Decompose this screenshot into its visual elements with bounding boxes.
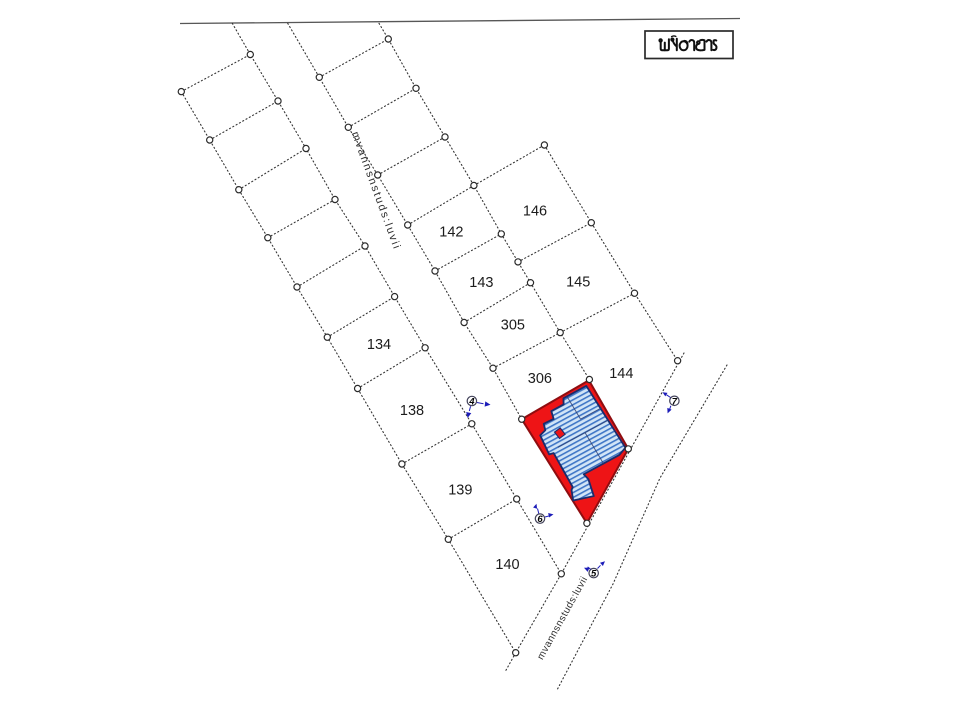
svg-text:142: 142 [439, 225, 463, 241]
svg-text:305: 305 [501, 317, 525, 333]
svg-text:7: 7 [672, 396, 678, 407]
svg-text:306: 306 [528, 371, 552, 387]
svg-text:138: 138 [400, 403, 424, 419]
svg-text:145: 145 [566, 275, 590, 291]
svg-text:4: 4 [468, 397, 475, 408]
svg-text:143: 143 [469, 275, 493, 291]
svg-text:144: 144 [609, 366, 633, 382]
svg-text:140: 140 [495, 557, 519, 573]
svg-text:134: 134 [367, 337, 391, 353]
svg-text:5: 5 [591, 569, 597, 580]
svg-text:146: 146 [523, 204, 547, 220]
svg-text:6: 6 [537, 514, 543, 525]
svg-text:139: 139 [448, 482, 472, 498]
